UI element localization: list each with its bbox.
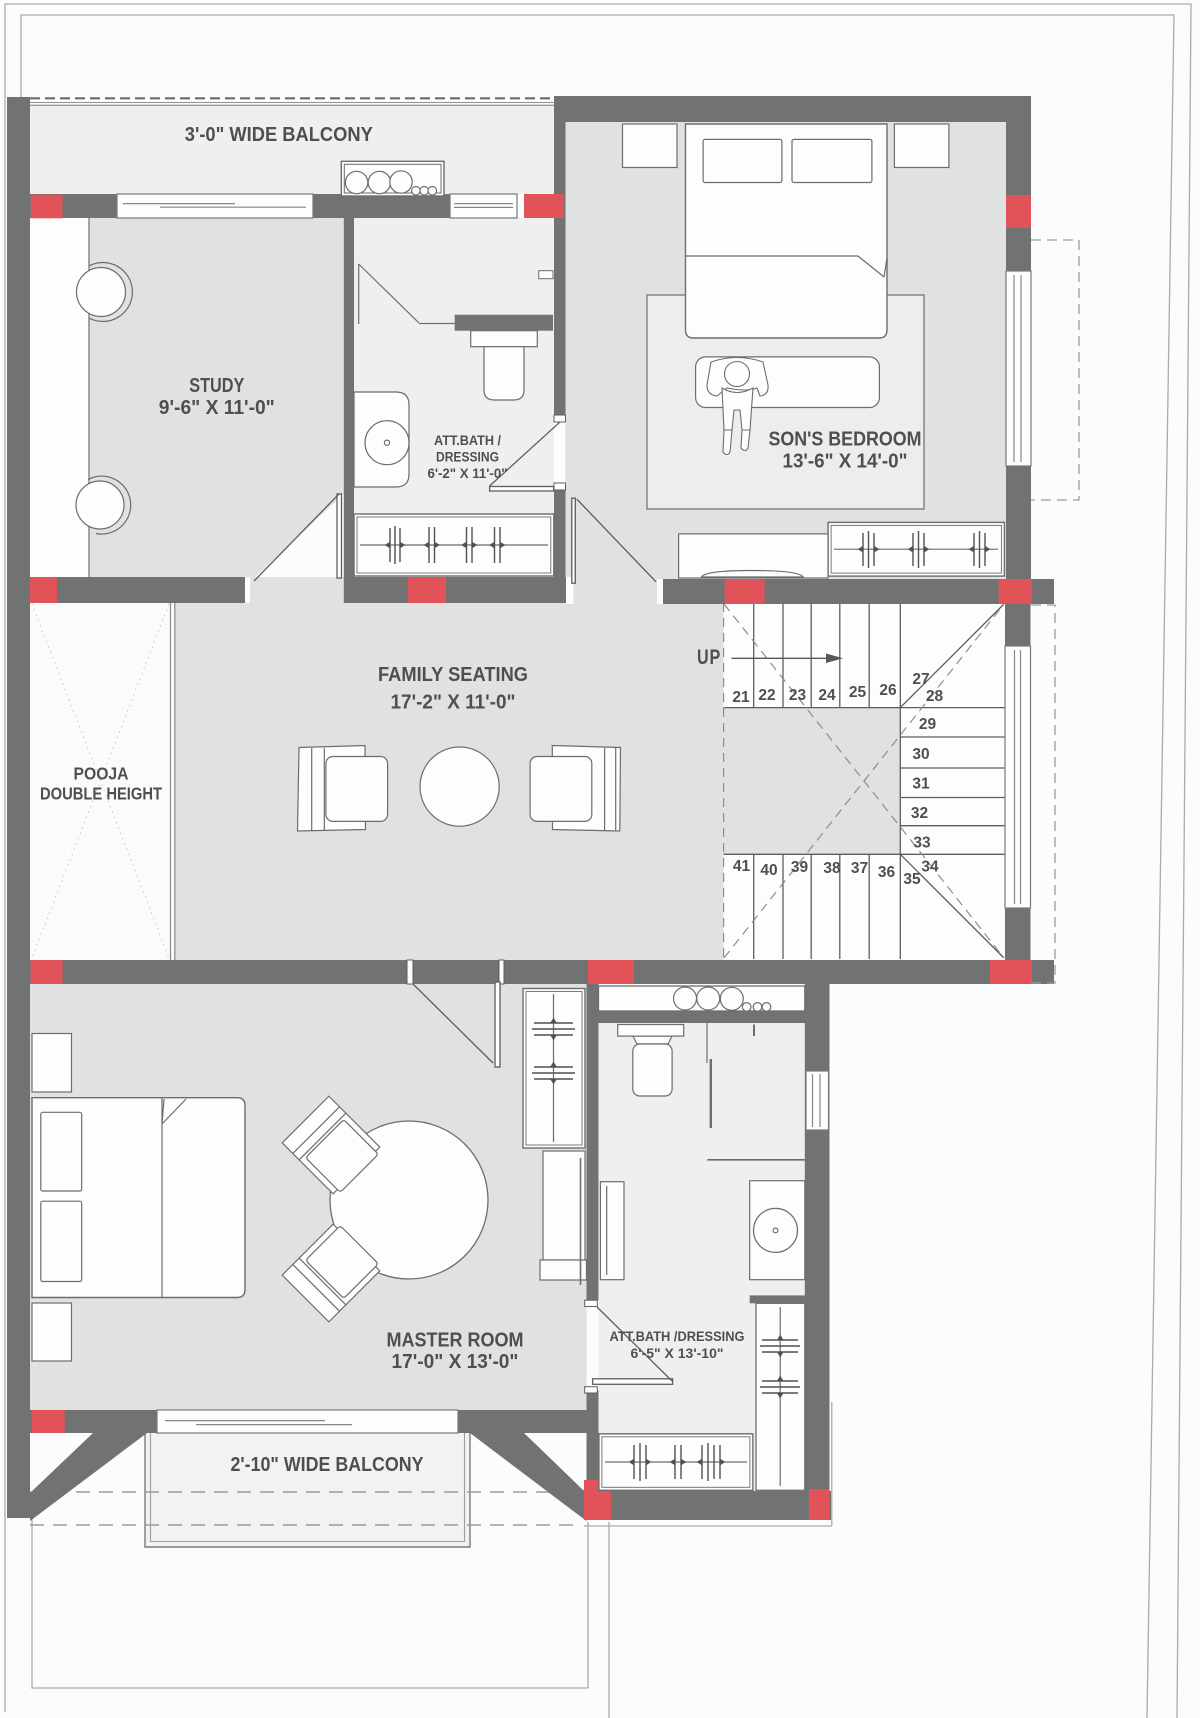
svg-text:STUDY: STUDY [189,375,245,397]
svg-text:SON'S BEDROOM: SON'S BEDROOM [769,428,922,451]
svg-text:26: 26 [879,682,897,699]
svg-text:2'-10" WIDE BALCONY: 2'-10" WIDE BALCONY [231,1454,425,1476]
svg-text:37: 37 [851,860,868,877]
svg-text:21: 21 [732,689,750,706]
svg-text:33: 33 [913,835,931,852]
svg-text:FAMILY SEATING: FAMILY SEATING [378,664,528,686]
svg-text:31: 31 [912,776,930,793]
svg-text:30: 30 [912,746,929,763]
svg-text:32: 32 [911,805,928,822]
svg-text:MASTER ROOM: MASTER ROOM [387,1329,524,1352]
svg-text:36: 36 [878,864,896,881]
svg-text:35: 35 [903,871,921,888]
svg-text:27: 27 [912,671,929,688]
svg-text:28: 28 [926,688,944,705]
svg-text:39: 39 [791,859,809,876]
svg-text:25: 25 [849,684,867,701]
svg-text:41: 41 [733,858,751,875]
svg-text:17'-0" X 13'-0": 17'-0" X 13'-0" [392,1350,519,1373]
svg-text:POOJA: POOJA [74,764,129,784]
svg-text:38: 38 [823,860,841,877]
svg-text:UP: UP [697,646,721,669]
svg-text:3'-0" WIDE BALCONY: 3'-0" WIDE BALCONY [185,123,373,146]
svg-text:40: 40 [760,862,777,879]
svg-text:22: 22 [758,687,775,704]
svg-text:6'-2" X 11'-0": 6'-2" X 11'-0" [428,466,508,481]
svg-text:DRESSING: DRESSING [436,450,499,465]
svg-text:ATT.BATH /: ATT.BATH / [434,433,501,448]
svg-text:29: 29 [919,716,937,733]
svg-text:34: 34 [921,859,939,876]
svg-text:23: 23 [789,687,807,704]
svg-text:17'-2" X 11'-0": 17'-2" X 11'-0" [391,692,516,714]
svg-text:ATT.BATH /DRESSING: ATT.BATH /DRESSING [610,1329,745,1344]
svg-text:9'-6" X 11'-0": 9'-6" X 11'-0" [159,397,275,419]
svg-text:13'-6" X 14'-0": 13'-6" X 14'-0" [783,450,908,473]
svg-text:24: 24 [818,687,836,704]
svg-text:DOUBLE HEIGHT: DOUBLE HEIGHT [40,784,162,804]
svg-text:6'-5" X 13'-10": 6'-5" X 13'-10" [631,1346,724,1361]
